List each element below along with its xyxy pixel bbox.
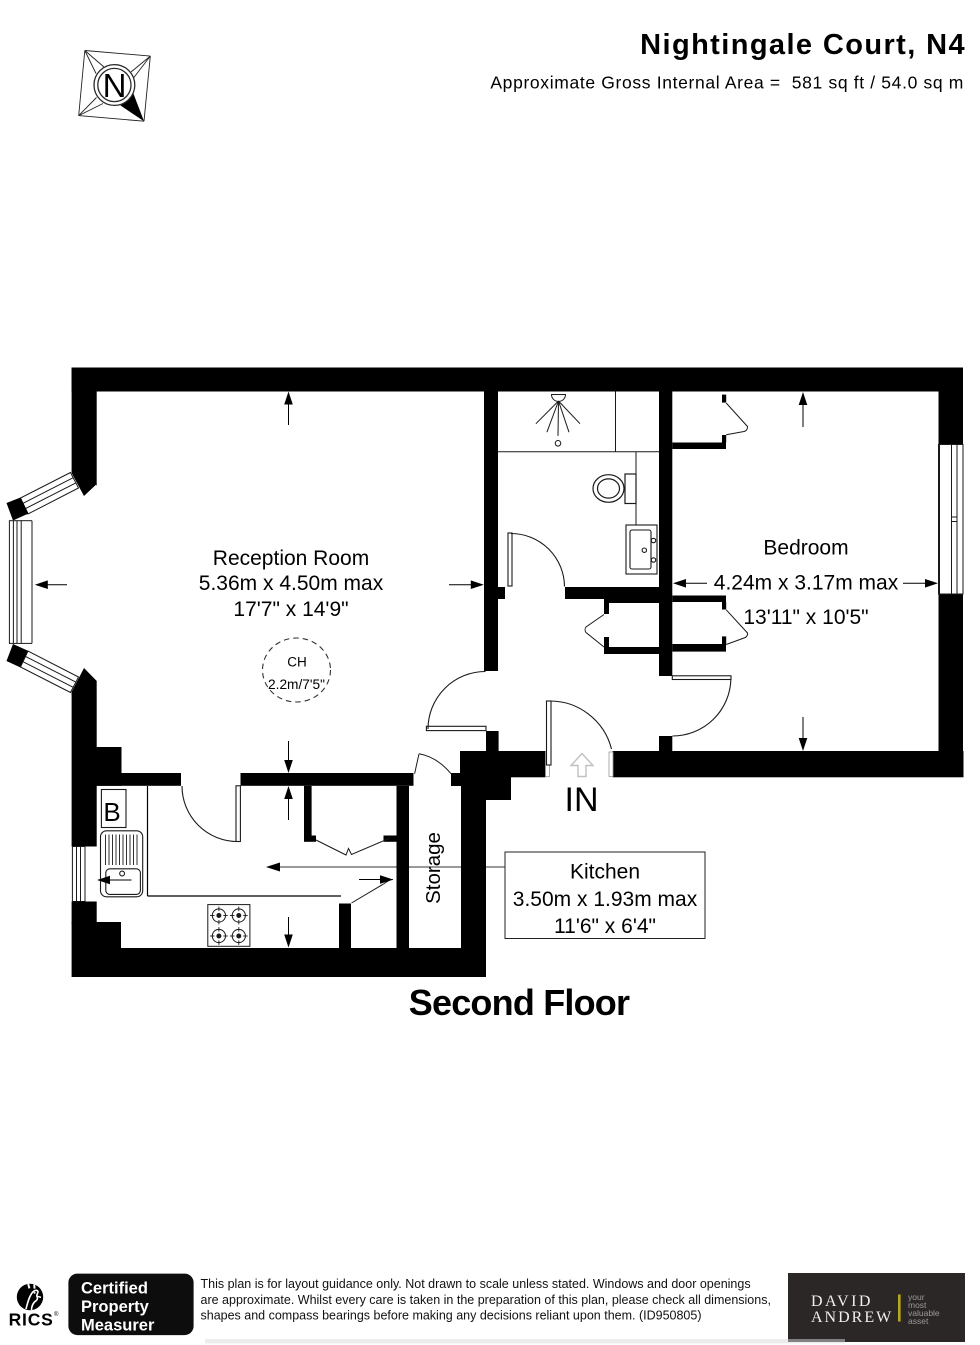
svg-text:3.50m x 1.93m max: 3.50m x 1.93m max [513, 888, 698, 911]
svg-text:asset: asset [908, 1316, 929, 1326]
svg-text:Approximate Gross Internal Are: Approximate Gross Internal Area = 581 sq… [490, 73, 964, 93]
svg-text:DAVID: DAVID [811, 1293, 873, 1310]
svg-text:IN: IN [565, 781, 599, 819]
svg-text:4.24m x 3.17m max: 4.24m x 3.17m max [714, 572, 899, 595]
svg-text:N: N [103, 67, 127, 104]
svg-text:RICS: RICS [9, 1310, 54, 1330]
svg-text:Nightingale Court, N4: Nightingale Court, N4 [640, 29, 966, 61]
svg-text:ANDREW: ANDREW [811, 1309, 893, 1326]
svg-text:5.36m x 4.50m max: 5.36m x 4.50m max [199, 572, 384, 595]
svg-text:Storage: Storage [422, 832, 445, 904]
svg-text:13'11" x 10'5": 13'11" x 10'5" [743, 606, 868, 629]
svg-text:CH: CH [287, 655, 307, 670]
svg-text:B: B [103, 797, 120, 827]
svg-text:Kitchen: Kitchen [570, 861, 640, 884]
svg-text:shapes and compass bearings be: shapes and compass bearings before makin… [201, 1309, 702, 1323]
svg-text:Bedroom: Bedroom [763, 537, 848, 560]
svg-text:11'6" x 6'4": 11'6" x 6'4" [554, 915, 656, 938]
svg-text:Property: Property [81, 1298, 150, 1316]
svg-text:Measurer: Measurer [81, 1317, 155, 1335]
svg-text:Second Floor: Second Floor [409, 982, 630, 1023]
svg-text:2.2m/7'5": 2.2m/7'5" [268, 677, 325, 692]
svg-text:Certified: Certified [81, 1280, 148, 1298]
svg-text:17'7" x 14'9": 17'7" x 14'9" [233, 598, 348, 621]
svg-text:This plan is for layout guidan: This plan is for layout guidance only. N… [201, 1277, 751, 1291]
svg-text:Reception Room: Reception Room [213, 547, 369, 570]
svg-text:are approximate. Whilst every: are approximate. Whilst every care is ta… [201, 1293, 771, 1307]
svg-text:®: ® [54, 1311, 59, 1318]
